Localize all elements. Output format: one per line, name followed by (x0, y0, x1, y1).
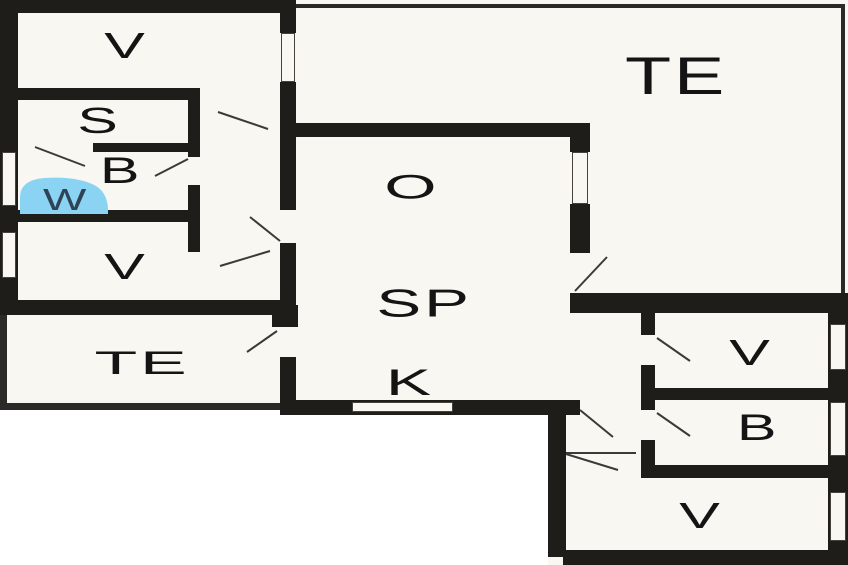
room-label-b-right: B (737, 409, 779, 446)
wall (18, 88, 200, 100)
wall (645, 465, 848, 478)
terrace-edge (841, 4, 845, 300)
room-label-k: K (386, 364, 435, 401)
wall (288, 123, 573, 137)
room-label-sp: SP (376, 284, 471, 323)
wall (280, 0, 296, 33)
wall (280, 243, 296, 305)
wall (188, 100, 200, 157)
room-label-v-bottom-right: V (679, 498, 723, 534)
room-label-v-mid-left: V (104, 249, 148, 285)
terrace-edge (0, 315, 7, 410)
wall (280, 357, 296, 415)
room-label-b-left: B (100, 152, 142, 189)
room-label-te-right: TE (625, 49, 727, 102)
room-label-w: W (43, 185, 89, 216)
wall (563, 550, 848, 565)
floor-area (280, 315, 590, 413)
window-opening (352, 402, 453, 412)
wall (280, 82, 296, 210)
wall (645, 388, 848, 400)
room-label-te-left: TE (94, 347, 189, 380)
window-opening (830, 324, 846, 370)
wall (570, 293, 848, 313)
window-opening (281, 33, 295, 82)
window-opening (830, 492, 846, 541)
room-label-v-right: V (729, 335, 773, 371)
window-opening (830, 402, 846, 456)
terrace-edge (0, 403, 290, 410)
room-label-o: O (384, 170, 439, 204)
window-opening (2, 152, 16, 206)
wall (548, 408, 566, 557)
wall (0, 0, 293, 13)
wall (570, 123, 590, 152)
window-opening (572, 152, 588, 204)
wall (641, 440, 655, 478)
wall (641, 313, 655, 335)
wall (570, 204, 590, 253)
terrace-edge (293, 4, 845, 8)
floor-plan: V S B W V TE O SP K TE V B V (0, 0, 848, 565)
wall (272, 305, 298, 327)
room-label-v-top-left: V (104, 28, 148, 64)
window-opening (2, 232, 16, 278)
wall (0, 300, 296, 315)
wall (641, 365, 655, 410)
room-label-s: S (77, 103, 121, 139)
